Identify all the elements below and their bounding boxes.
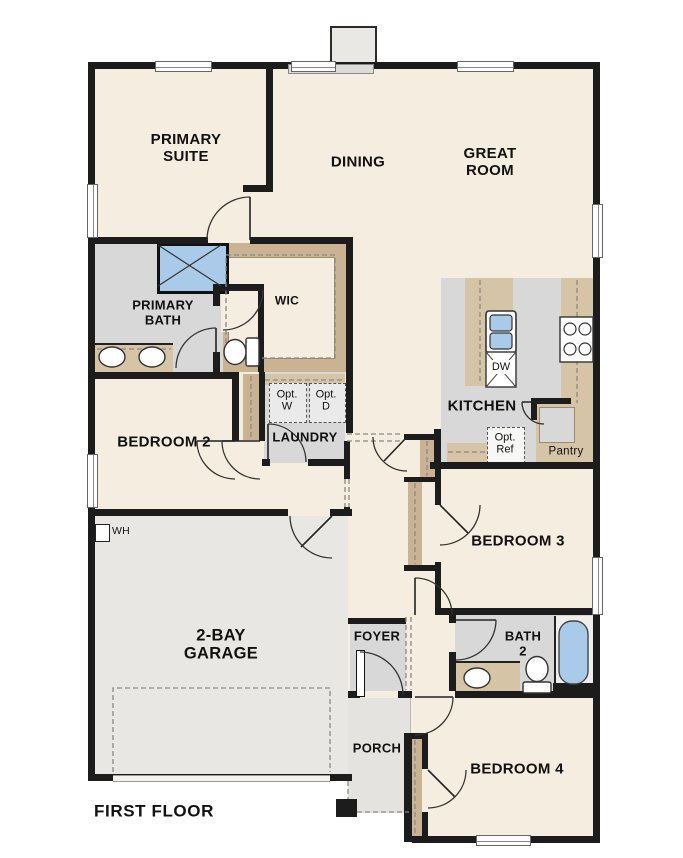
window [476, 835, 531, 846]
wall-hall-west-a [344, 441, 350, 479]
porch-label: PORCH [353, 742, 401, 757]
wall-foyer-top [348, 618, 406, 624]
wall-bath2-left-b [449, 652, 456, 691]
bedroom2-label: BEDROOM 2 [117, 435, 211, 452]
wall-toiletroom-e [258, 284, 264, 372]
wall-b4closet-e-b [422, 812, 428, 842]
wall-pantry-top [531, 398, 571, 404]
laundry-label: LAUNDRY [272, 431, 337, 446]
optional-washer-label: Opt. W [277, 389, 298, 414]
wall-b4closet-e-a [422, 733, 428, 769]
wall-foyer-bottom-b [398, 691, 412, 698]
wic-label: WIC [275, 294, 299, 307]
wall-closet-east [259, 372, 265, 441]
porch-post [336, 799, 357, 817]
great-room-label: GREAT ROOM [464, 146, 517, 180]
wall-left [88, 62, 95, 781]
entry-door-leaf [356, 650, 365, 697]
wall-garage-top-a [88, 509, 288, 516]
window [457, 61, 514, 72]
kitchen-wall-counter [561, 278, 593, 406]
dining-label: DINING [331, 155, 385, 172]
wall-toiletroom-n [213, 284, 264, 291]
garage-door [113, 775, 330, 782]
window [87, 184, 98, 238]
wall-b4closet-w [404, 733, 412, 842]
wall-suite-dining [266, 62, 273, 191]
wall-closet-west [232, 372, 239, 441]
wall-suite-stub [243, 185, 273, 192]
window [592, 204, 603, 258]
window [592, 557, 603, 615]
wall-bath2-left-a [449, 615, 456, 623]
primary-suite-label: PRIMARY SUITE [151, 132, 222, 166]
bedroom2-closet [243, 374, 259, 440]
floor-plan-title: FIRST FLOOR [94, 801, 214, 820]
kitchen-label: KITCHEN [448, 399, 517, 416]
wall-garage-top-b [330, 509, 352, 516]
primary-bath-label: PRIMARY BATH [132, 298, 194, 327]
wic-area [228, 257, 335, 359]
wall-wic-right [346, 237, 353, 433]
hall-closet-upper [420, 440, 435, 478]
bath-vanity-counter [95, 343, 173, 374]
wall-toiletroom-w-b [213, 352, 220, 372]
wic-door-opening [221, 288, 230, 332]
wall-closetcol-e-up [435, 434, 441, 505]
pantry-area [539, 407, 575, 443]
wall-right [593, 62, 600, 843]
foyer-label: FOYER [354, 630, 400, 645]
hall-closet-lower [408, 482, 422, 566]
wall-bedroom3-bottom [437, 608, 600, 615]
window [155, 61, 212, 72]
wall-laundry-bottom-a [262, 459, 270, 466]
garage-label: 2-BAY GARAGE [184, 627, 258, 664]
pantry-label: Pantry [548, 446, 583, 459]
wall-tub-foot [553, 683, 593, 691]
wall-bath-top-right [250, 237, 353, 244]
optional-dryer-label: Opt. D [316, 389, 337, 414]
wall-bath-top-left [88, 237, 208, 244]
kitchen-bottom-counter [447, 443, 488, 462]
wall-pantry-left [531, 398, 537, 420]
floor-plan: PRIMARY SUITE DINING GREAT ROOM PRIMARY … [0, 0, 683, 858]
water-heater-label: WH [112, 526, 130, 538]
window [87, 454, 98, 508]
wall-bath-bedroom2 [88, 372, 239, 379]
water-heater-box [95, 524, 110, 542]
window [291, 61, 336, 72]
wall-toiletroom-w-a [213, 284, 220, 306]
bedroom3-label: BEDROOM 3 [471, 534, 565, 551]
bedroom4-label: BEDROOM 4 [470, 762, 564, 779]
dishwasher-label: DW [492, 361, 510, 373]
wall-bedroom3-top [430, 462, 600, 469]
bath2-vanity-counter [456, 661, 520, 693]
wall-bath2-bottom [455, 691, 600, 698]
bath2-label: BATH 2 [505, 629, 541, 658]
bathtub-platform [554, 616, 595, 692]
optional-refrigerator-label: Opt. Ref [495, 432, 516, 457]
